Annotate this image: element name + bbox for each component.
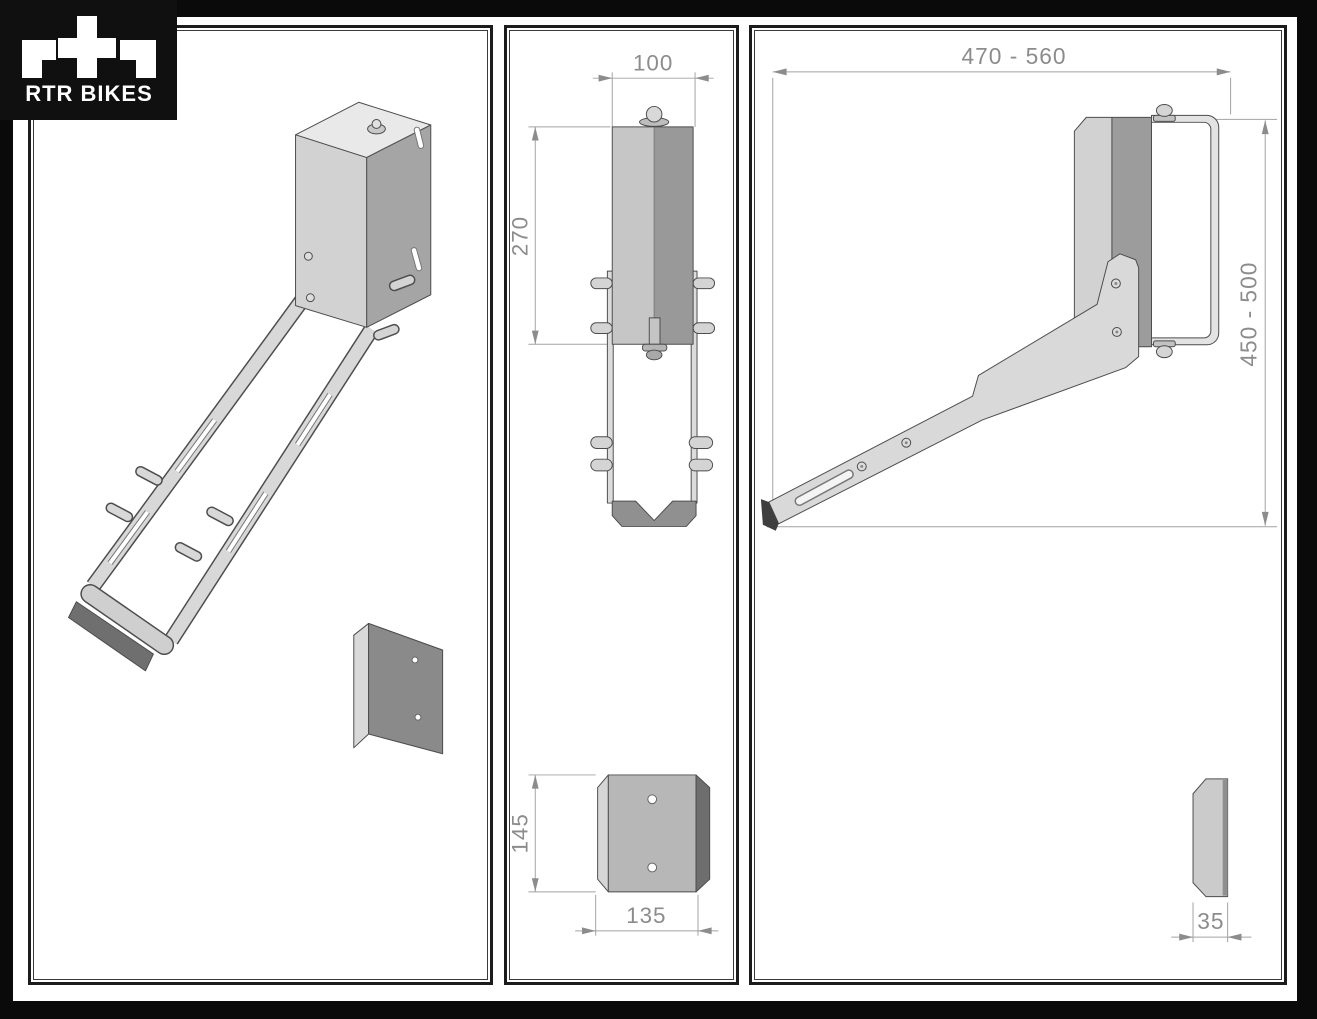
dim-plate-depth-label: 35 bbox=[1197, 908, 1224, 934]
outer-frame-right bbox=[1297, 0, 1317, 1019]
outer-frame-left bbox=[0, 0, 13, 1019]
rtr-cross-symbol-icon bbox=[22, 16, 156, 78]
panel-front-view: 100 270 bbox=[504, 25, 739, 985]
iso-wall-plate bbox=[354, 623, 443, 753]
dim-plate-width: 135 bbox=[575, 895, 718, 936]
rtr-logo-mark-icon: RTR BIKES bbox=[0, 0, 177, 120]
dim-plate-height: 145 bbox=[507, 775, 595, 892]
side-view-drawing: 470 - 560 450 - 500 bbox=[752, 28, 1284, 982]
iso-rail-end-cap bbox=[69, 594, 165, 671]
panel-isometric-view bbox=[28, 25, 493, 985]
front-body bbox=[612, 106, 693, 359]
outer-frame-bottom bbox=[0, 1001, 1317, 1019]
dim-plate-height-label: 145 bbox=[507, 813, 532, 853]
dim-front-height: 270 bbox=[507, 127, 610, 344]
front-v-cradle bbox=[612, 501, 696, 526]
panel-side-view: 470 - 560 450 - 500 bbox=[749, 25, 1287, 985]
front-view-drawing: 100 270 bbox=[507, 28, 736, 982]
dim-front-height-label: 270 bbox=[507, 216, 532, 256]
side-wall-plate bbox=[1193, 779, 1228, 897]
iso-head-box bbox=[296, 102, 431, 335]
dim-side-height-label: 450 - 500 bbox=[1235, 262, 1261, 367]
dim-plate-depth: 35 bbox=[1171, 903, 1251, 943]
front-wall-plate bbox=[598, 775, 710, 892]
dim-plate-width-label: 135 bbox=[626, 903, 666, 928]
isometric-drawing bbox=[31, 28, 490, 982]
outer-frame-top bbox=[0, 0, 1317, 17]
dim-side-reach-label: 470 - 560 bbox=[962, 43, 1067, 69]
brand-text: RTR BIKES bbox=[25, 81, 153, 106]
logo: RTR BIKES bbox=[0, 0, 177, 120]
dim-front-width-label: 100 bbox=[633, 50, 673, 75]
iso-near-rail bbox=[93, 300, 302, 586]
iso-far-rail bbox=[171, 329, 371, 640]
